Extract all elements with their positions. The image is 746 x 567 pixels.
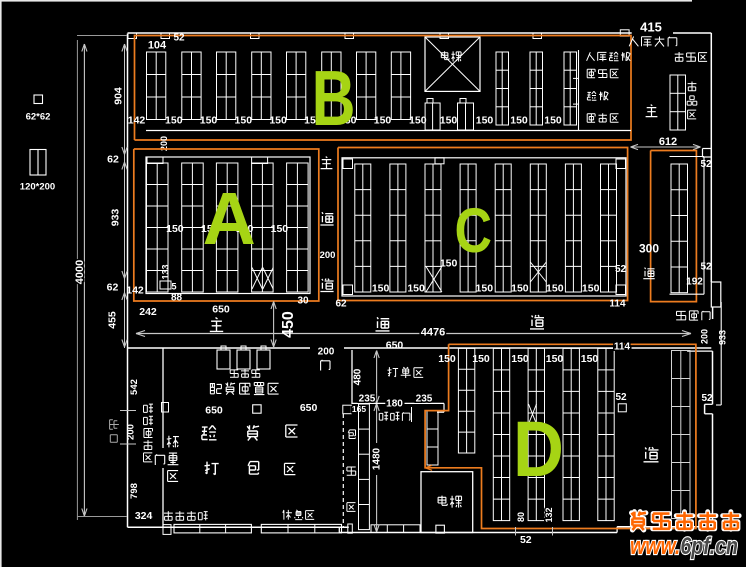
svg-text:904: 904 [112, 87, 124, 105]
svg-text:612: 612 [659, 136, 677, 148]
svg-text:150: 150 [510, 114, 528, 126]
svg-text:80: 80 [516, 512, 526, 522]
svg-text:150: 150 [582, 282, 600, 294]
svg-text:650: 650 [300, 402, 318, 414]
svg-text:52: 52 [701, 393, 713, 404]
svg-text:450: 450 [280, 311, 297, 338]
svg-text:150: 150 [440, 114, 458, 126]
svg-text:5: 5 [171, 282, 176, 292]
svg-text:142: 142 [128, 114, 146, 126]
svg-text:150: 150 [581, 353, 599, 365]
svg-text:142: 142 [126, 284, 144, 296]
svg-text:200: 200 [125, 424, 136, 440]
svg-text:650: 650 [212, 303, 230, 315]
svg-text:52: 52 [700, 262, 712, 273]
svg-text:150: 150 [438, 353, 456, 365]
svg-text:150: 150 [372, 282, 390, 294]
svg-text:150: 150 [544, 114, 562, 126]
svg-text:120*200: 120*200 [20, 181, 55, 192]
svg-text:150: 150 [374, 114, 392, 126]
svg-text:114: 114 [614, 342, 631, 353]
svg-text:324: 324 [135, 510, 153, 522]
svg-text:150: 150 [546, 282, 564, 294]
svg-text:933: 933 [109, 209, 121, 227]
svg-text:132: 132 [544, 507, 554, 522]
svg-text:30: 30 [297, 296, 309, 307]
svg-text:480: 480 [352, 368, 363, 385]
svg-text:150: 150 [472, 353, 490, 365]
svg-text:200: 200 [320, 250, 336, 261]
svg-text:180: 180 [386, 399, 403, 410]
svg-text:150: 150 [476, 282, 494, 294]
svg-text:415: 415 [640, 20, 662, 35]
svg-text:200: 200 [318, 346, 335, 357]
svg-text:1480: 1480 [372, 447, 383, 470]
svg-text:62: 62 [335, 299, 347, 310]
svg-text:www.6pf.cn: www.6pf.cn [630, 533, 738, 560]
svg-text:150: 150 [166, 223, 184, 235]
svg-text:150: 150 [511, 353, 529, 365]
svg-text:D: D [513, 404, 564, 493]
svg-text:933: 933 [718, 330, 728, 345]
svg-text:165: 165 [352, 404, 366, 414]
svg-text:52: 52 [615, 392, 627, 403]
svg-text:52: 52 [615, 264, 627, 275]
svg-text:B: B [312, 54, 356, 142]
svg-text:150: 150 [546, 353, 564, 365]
svg-text:542: 542 [129, 379, 140, 395]
svg-text:150: 150 [235, 114, 253, 126]
svg-text:150: 150 [511, 282, 529, 294]
svg-text:150: 150 [165, 114, 183, 126]
svg-text:62*62: 62*62 [26, 111, 51, 122]
svg-text:104: 104 [148, 40, 167, 52]
svg-text:4000: 4000 [74, 260, 86, 284]
svg-text:192: 192 [686, 277, 703, 288]
svg-text:455: 455 [106, 311, 118, 329]
svg-text:C: C [455, 196, 493, 266]
svg-text:150: 150 [200, 114, 218, 126]
svg-text:300: 300 [639, 241, 659, 255]
svg-text:52: 52 [173, 33, 185, 44]
svg-text:150: 150 [407, 282, 425, 294]
svg-text:798: 798 [129, 483, 140, 499]
svg-text:150: 150 [409, 114, 427, 126]
svg-text:4476: 4476 [421, 327, 445, 339]
svg-text:235: 235 [359, 394, 376, 405]
svg-text:88: 88 [171, 293, 183, 304]
svg-text:650: 650 [386, 339, 404, 351]
svg-text:62: 62 [107, 281, 119, 293]
svg-text:52: 52 [700, 159, 712, 170]
svg-text:62: 62 [107, 153, 119, 165]
svg-text:650: 650 [205, 404, 223, 416]
svg-text:114: 114 [609, 299, 626, 310]
svg-text:52: 52 [520, 534, 532, 546]
svg-text:235: 235 [416, 394, 433, 405]
svg-text:150: 150 [271, 223, 289, 235]
svg-text:242: 242 [139, 306, 157, 318]
svg-text:200: 200 [700, 329, 710, 344]
svg-text:133: 133 [161, 264, 171, 279]
svg-text:150: 150 [269, 114, 287, 126]
svg-text:A: A [203, 177, 256, 260]
svg-text:150: 150 [476, 114, 494, 126]
